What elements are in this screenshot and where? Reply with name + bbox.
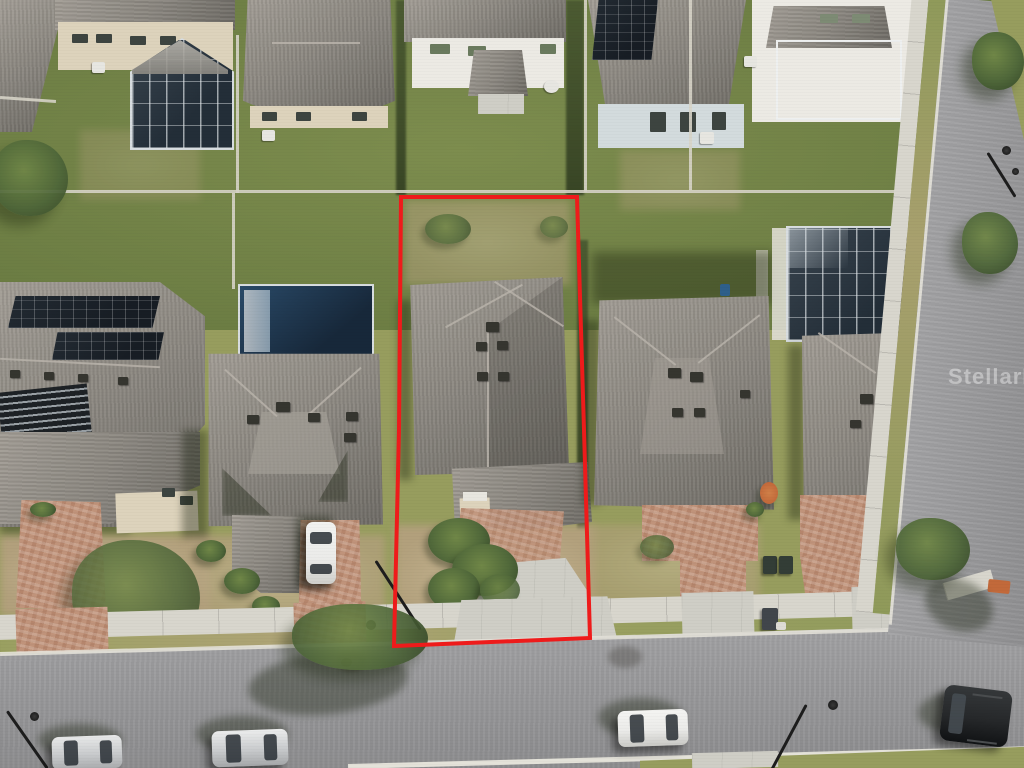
mls-watermark: StellarMLS	[948, 364, 1024, 390]
photo-grain-overlay	[0, 0, 1024, 768]
aerial-neighborhood-photo: StellarMLS	[0, 0, 1024, 768]
